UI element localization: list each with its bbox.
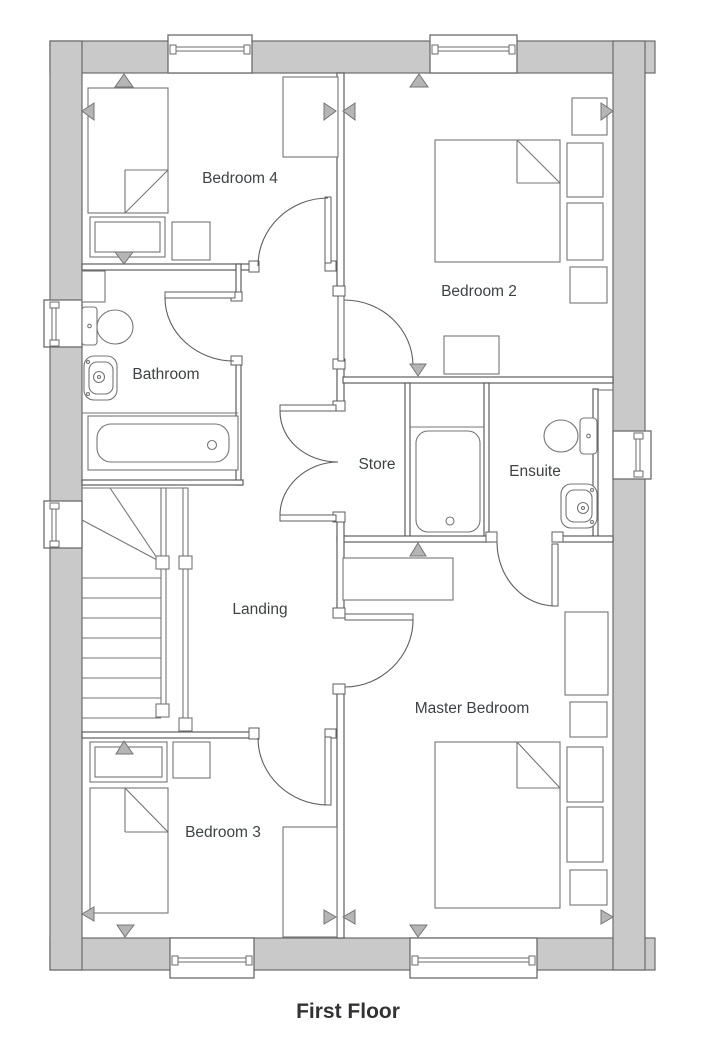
stairs-newel-post: [156, 556, 169, 569]
stairs-newel-post: [156, 704, 169, 717]
door-bathroom: [165, 292, 235, 361]
stairs-outer-rail: [183, 488, 188, 724]
room-labels: Bedroom 4 Bedroom 2 Bathroom Store Ensui…: [132, 170, 560, 841]
cupboard: [343, 558, 453, 600]
room-label-landing: Landing: [232, 601, 287, 618]
window-stairs-west: [44, 501, 82, 548]
nightstand: [173, 742, 210, 778]
floor-plan-page: Bedroom 4 Bedroom 2 Bathroom Store Ensui…: [0, 0, 714, 1046]
door-ensuite: [497, 542, 558, 606]
staircase: [82, 488, 192, 731]
pillow: [567, 143, 603, 197]
pillow: [567, 747, 603, 802]
stairs-newel-post: [179, 556, 192, 569]
door-jambs: [231, 261, 563, 739]
wardrobe: [565, 612, 608, 695]
door-master-bedroom: [345, 614, 413, 687]
door-bedroom4: [258, 197, 331, 266]
bedroom2-furniture: [435, 98, 607, 374]
room-label-bedroom4: Bedroom 4: [202, 170, 278, 187]
single-bed: [90, 742, 168, 913]
nightstand: [570, 870, 607, 905]
room-label-bedroom3: Bedroom 3: [185, 824, 261, 841]
wall-shower-east: [484, 383, 489, 540]
bathroom-cupboard: [82, 271, 105, 302]
wall-bed3-master-divider: [337, 689, 344, 938]
room-label-master-bedroom: Master Bedroom: [415, 700, 530, 717]
master-bedroom-furniture: [343, 558, 608, 908]
room-label-bathroom: Bathroom: [132, 366, 199, 383]
wall-store-east: [405, 383, 410, 540]
basin-fixture: [84, 356, 117, 400]
door-store-bifold: [280, 405, 338, 521]
toilet-fixture: [544, 418, 597, 454]
first-floor-plan: Bedroom 4 Bedroom 2 Bathroom Store Ensui…: [0, 0, 714, 1046]
window-bedroom2-north: [430, 35, 517, 73]
double-bed: [435, 140, 603, 262]
room-label-ensuite: Ensuite: [509, 463, 561, 480]
window-ensuite-east: [613, 431, 651, 479]
window-bedroom3-south: [170, 938, 254, 978]
chest: [444, 336, 499, 374]
stairs-newel-post: [179, 718, 192, 731]
room-label-bedroom2: Bedroom 2: [441, 283, 517, 300]
basin-fixture: [561, 484, 597, 528]
window-bedroom4-north: [168, 35, 252, 73]
wardrobe: [283, 77, 338, 157]
single-bed: [88, 88, 168, 257]
nightstand: [570, 267, 607, 303]
wall-bedroom2-south: [343, 377, 613, 383]
wall-store-shower-south: [337, 536, 492, 542]
wall-bedroom4-south: [82, 264, 254, 270]
shower-fixture: [410, 427, 484, 532]
nightstand: [570, 702, 607, 737]
wall-bathroom-south: [82, 480, 243, 485]
pillow: [567, 203, 603, 260]
window-bathroom-west: [44, 300, 82, 347]
plan-title: First Floor: [296, 1000, 400, 1023]
bathtub-fixture: [82, 413, 238, 470]
bedroom4-furniture: [88, 77, 338, 260]
window-master-south: [410, 938, 537, 978]
door-bedroom3: [258, 737, 331, 805]
wall-bedroom3-north: [82, 732, 254, 738]
room-label-store: Store: [358, 456, 395, 473]
wall-ensuite-south: [558, 536, 613, 542]
door-bedroom2: [338, 296, 413, 366]
stairs-inner-rail: [161, 488, 166, 714]
pillow: [567, 807, 603, 862]
toilet-fixture: [82, 307, 133, 345]
nightstand: [172, 222, 210, 260]
